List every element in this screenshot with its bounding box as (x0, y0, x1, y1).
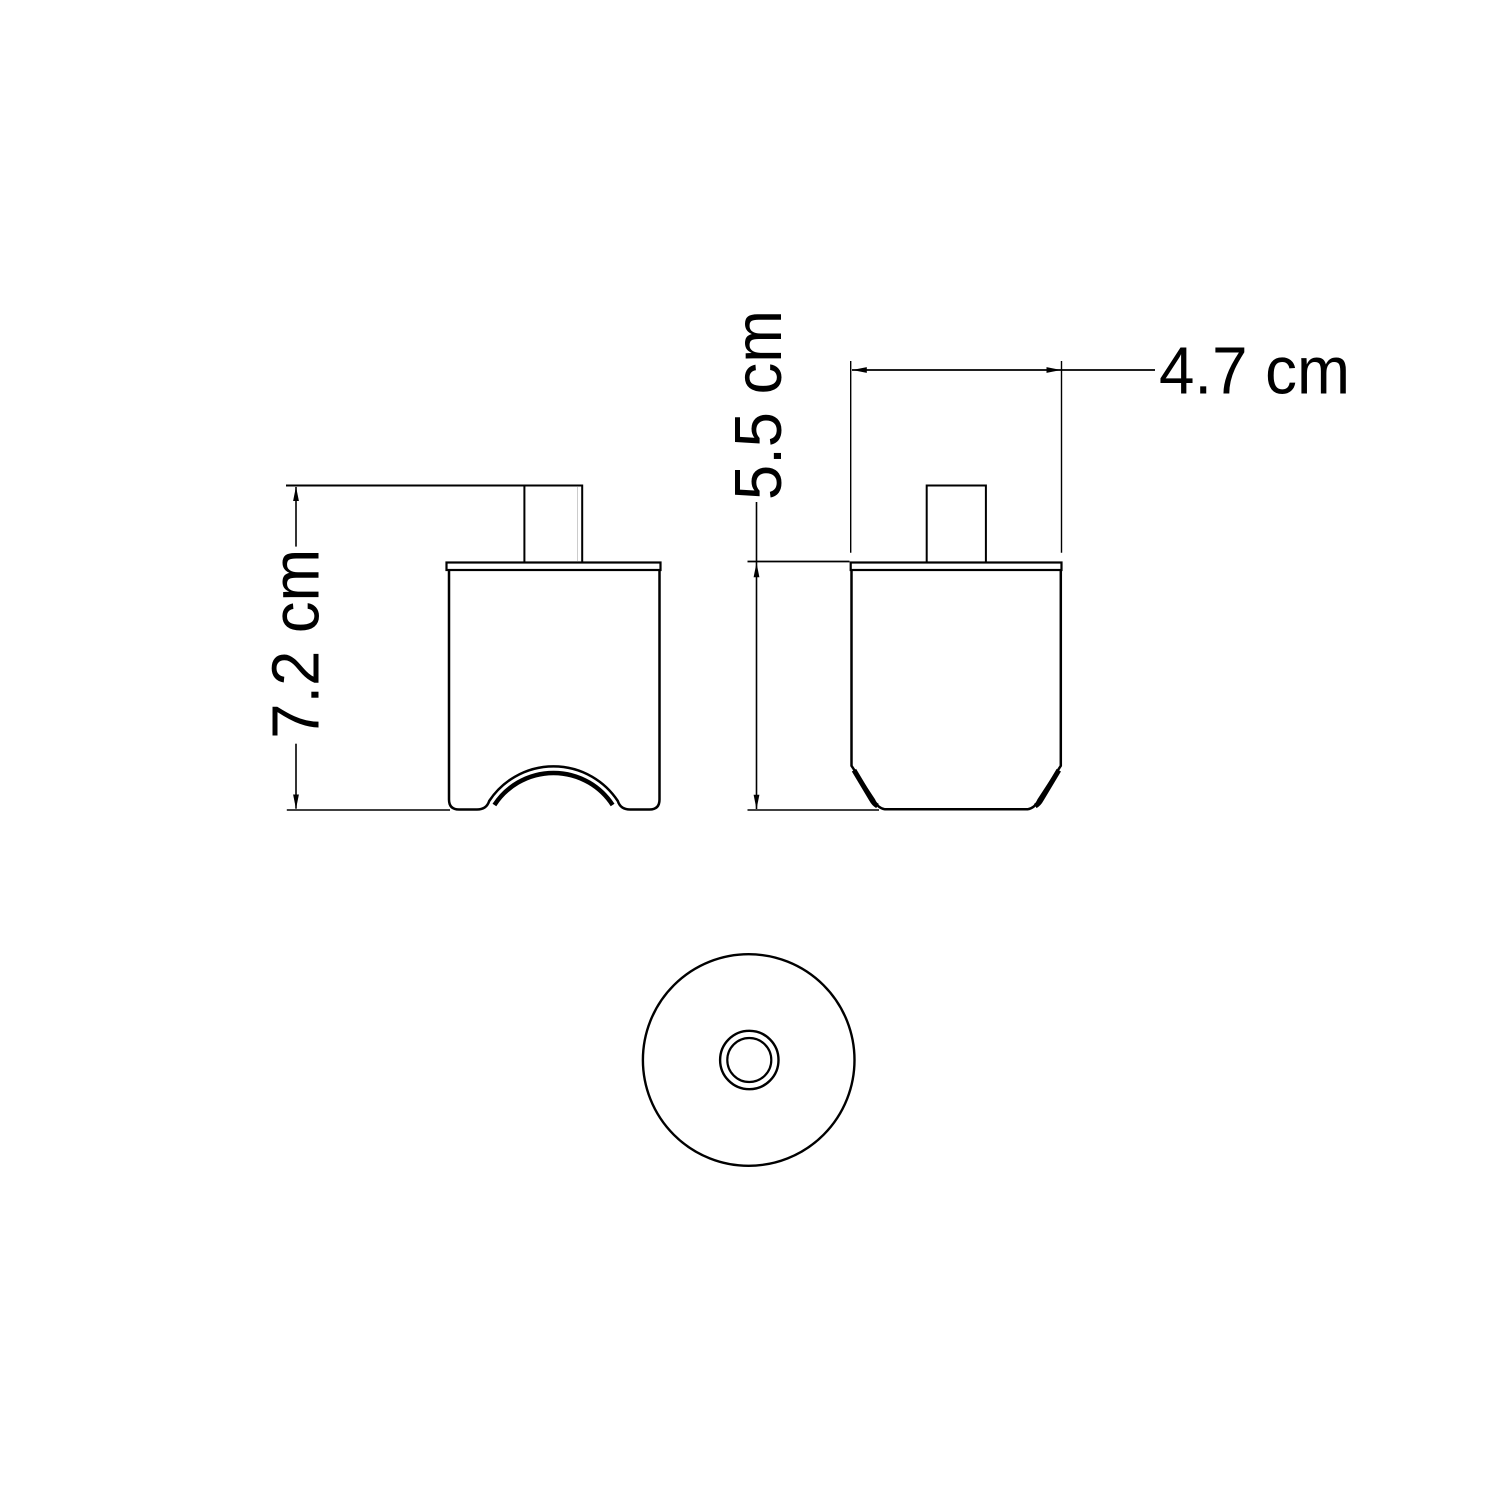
svg-text:7.2 cm: 7.2 cm (259, 549, 334, 739)
svg-text:4.7 cm: 4.7 cm (1159, 334, 1350, 409)
svg-text:5.5 cm: 5.5 cm (721, 310, 796, 500)
